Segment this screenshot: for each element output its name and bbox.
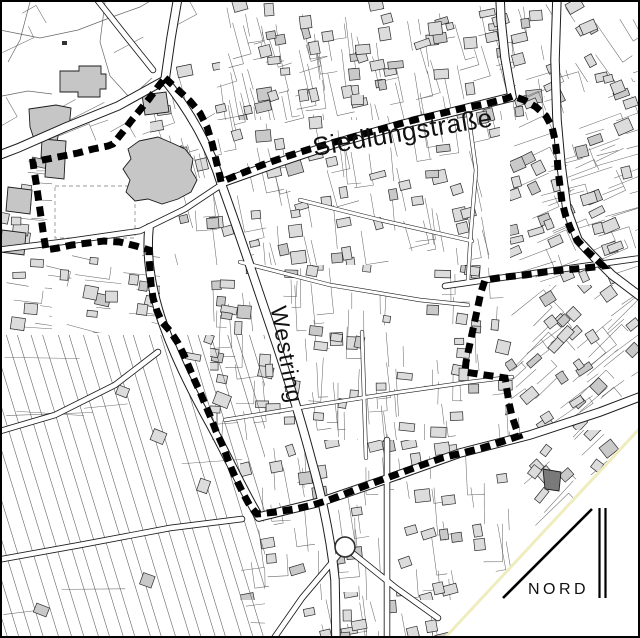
building [13, 272, 26, 279]
building [414, 489, 430, 503]
building [464, 37, 478, 49]
building [87, 310, 98, 317]
building [435, 270, 451, 278]
building [330, 333, 342, 342]
building [260, 537, 275, 549]
building [237, 305, 252, 319]
building [258, 45, 272, 59]
building [495, 339, 511, 354]
building [308, 41, 320, 55]
building [378, 79, 387, 90]
building [397, 372, 413, 380]
building [341, 246, 352, 260]
building [348, 68, 360, 80]
building [309, 116, 322, 129]
building [207, 218, 219, 229]
building [411, 196, 423, 206]
building [266, 364, 273, 377]
building [426, 170, 439, 178]
building [303, 607, 315, 616]
building [251, 210, 261, 219]
building [291, 209, 301, 218]
building [474, 538, 486, 550]
building [264, 3, 274, 16]
building [376, 383, 386, 390]
building [378, 27, 391, 41]
building [456, 313, 468, 325]
building [521, 18, 530, 28]
building [235, 321, 243, 334]
building [428, 22, 443, 36]
building [105, 291, 117, 302]
building [11, 217, 21, 225]
building [322, 31, 334, 42]
building [290, 250, 306, 264]
building [383, 315, 391, 322]
nord-label: NORD [528, 581, 589, 598]
building [331, 253, 343, 263]
building [459, 368, 468, 381]
building [465, 83, 475, 96]
building [270, 461, 283, 473]
building [351, 507, 362, 516]
building [491, 319, 499, 330]
building [60, 270, 69, 281]
dark-building [543, 469, 561, 491]
building [343, 610, 351, 621]
building [268, 56, 281, 64]
building [529, 10, 542, 21]
building [515, 106, 524, 117]
building [388, 189, 398, 201]
building [339, 186, 348, 198]
building [399, 422, 415, 431]
building [472, 524, 482, 537]
building [244, 105, 253, 114]
building [220, 280, 234, 289]
building [455, 338, 464, 344]
map-canvas: SiedlungstraßeWestring NORD [0, 0, 640, 638]
building [30, 259, 43, 268]
building [456, 222, 469, 235]
building [439, 529, 449, 540]
building [309, 326, 323, 337]
building [431, 427, 447, 437]
building [24, 303, 38, 315]
building [10, 317, 25, 331]
building [137, 304, 148, 316]
building [442, 495, 456, 505]
building [592, 222, 604, 234]
plan-map: SiedlungstraßeWestring NORD [0, 0, 640, 638]
building [278, 243, 289, 255]
building [313, 412, 323, 420]
roundabout [336, 538, 355, 557]
building [469, 384, 479, 393]
building [388, 61, 404, 70]
building [446, 22, 454, 30]
building [274, 138, 284, 150]
building [497, 473, 508, 483]
building [450, 412, 463, 421]
building [425, 620, 437, 633]
building [436, 144, 450, 152]
building [451, 532, 462, 542]
building [434, 69, 449, 79]
building [355, 44, 370, 55]
building [298, 89, 308, 102]
building [280, 68, 290, 76]
building [299, 15, 312, 29]
building [432, 582, 444, 595]
building [216, 374, 227, 384]
public-building [6, 187, 32, 214]
small-structure [62, 41, 67, 45]
building [284, 417, 294, 424]
building [255, 130, 271, 143]
building [83, 285, 99, 300]
building [306, 265, 318, 277]
building [221, 312, 232, 320]
building [314, 341, 328, 351]
building [179, 214, 189, 223]
building [427, 305, 439, 315]
building [575, 145, 589, 159]
building [129, 274, 139, 285]
building [266, 31, 276, 40]
building [90, 257, 99, 264]
building [266, 554, 276, 564]
public-building [60, 66, 106, 97]
building [139, 281, 149, 291]
building [288, 224, 303, 238]
